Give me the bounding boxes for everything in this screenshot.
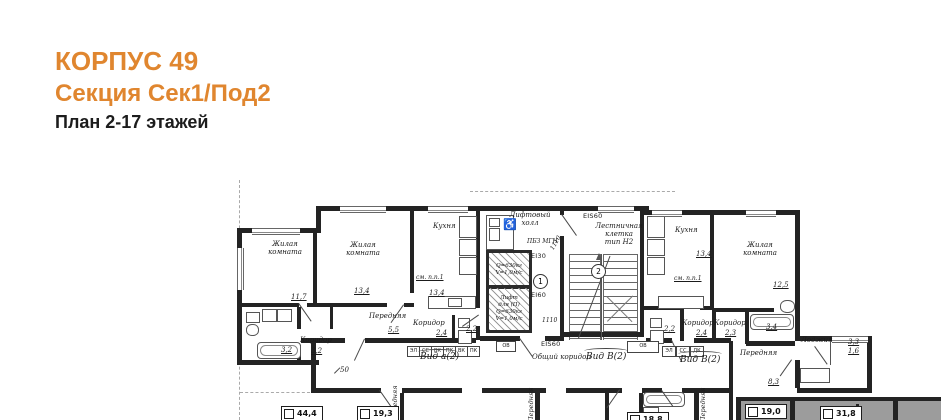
fixture <box>647 216 665 238</box>
wall <box>714 308 774 312</box>
view-mark-a: Вид а(2) <box>420 352 459 362</box>
wall <box>710 214 714 310</box>
stair-direction-arrow <box>596 250 602 260</box>
wall <box>311 388 381 393</box>
room-area-loggia-bottom: 1,6 <box>848 347 859 355</box>
i <box>748 407 758 417</box>
wall <box>736 397 941 401</box>
fixture <box>246 312 260 323</box>
stair-number-badge: 2 <box>591 264 606 279</box>
wall <box>400 393 404 420</box>
room-area-corridor-mid: 2,4 <box>436 329 447 337</box>
i <box>360 409 370 419</box>
fire-rating-eis60-top: EIS60 <box>583 213 602 220</box>
axis-line <box>240 392 310 393</box>
wall-thin <box>830 341 831 365</box>
wall <box>790 399 795 420</box>
fixture <box>277 309 292 322</box>
door-swing-line <box>519 338 532 357</box>
wall <box>797 388 872 393</box>
room-area-bath-left: 3,2 <box>281 346 292 354</box>
room-label-living1: Жилая комната <box>263 240 307 256</box>
wall <box>893 399 898 420</box>
wall <box>746 341 795 346</box>
heating-box: ОВ <box>627 341 659 353</box>
apartment-area-box: 44,4 <box>281 406 323 420</box>
lift-hall-label: Лифтовый холл <box>508 211 552 227</box>
room-note-kitchen-left: см. п.п.1 <box>416 275 444 282</box>
window <box>746 210 776 217</box>
room-area-kitchen-left: 13,4 <box>429 289 445 297</box>
view-mark-b: Вид В(2) <box>586 352 626 362</box>
apartment-area-box: 19,3 <box>357 406 399 420</box>
axis-line <box>470 191 675 192</box>
room-area-living2: 13,4 <box>354 287 370 295</box>
room-label-hall-right: Передняя <box>740 349 777 357</box>
room-label-corridor-left: Коридор <box>300 336 332 344</box>
room-area-loggia-top: 3,3 <box>848 338 859 346</box>
fixture <box>448 298 462 307</box>
fixture <box>459 257 477 275</box>
room-label-vestibule: Передняя <box>700 398 707 420</box>
door-dim: 1110 <box>542 318 557 325</box>
room-area-corridor-r2: 2,3 <box>725 329 736 337</box>
room-label-corridor-r2: Коридор <box>714 319 746 327</box>
door-swing-line <box>814 346 827 365</box>
apartment-area-box: 19,0 <box>745 404 787 419</box>
wall <box>694 338 731 343</box>
room-label-kitchen-right: Кухня <box>675 226 698 234</box>
wall <box>694 393 699 420</box>
building-title: КОРПУС 49 <box>55 46 198 77</box>
fixture <box>780 300 795 313</box>
window <box>428 206 468 213</box>
dim-50: 50 <box>340 366 349 374</box>
elevator-shaft-2: Лифт для (П) Q=630кг V=1,0м/с <box>486 285 532 333</box>
fixture <box>647 257 665 275</box>
wall <box>452 315 455 341</box>
window <box>652 210 682 217</box>
fixture <box>459 239 477 256</box>
fixture <box>489 218 500 227</box>
elevator-shaft-1: Q=630кг V=1,0м/с <box>486 250 532 289</box>
fixture <box>262 309 277 322</box>
floor-plan-page: КОРПУС 49 Секция Сек1/Под2 План 2-17 эта… <box>0 0 941 420</box>
view-mark-b: Вид В(2) <box>680 355 720 365</box>
wall <box>317 303 387 307</box>
room-area-bath-r2: 3,4 <box>766 323 777 331</box>
meter-box: ПК <box>467 346 480 357</box>
wall <box>330 307 333 329</box>
fire-rating-ei60: EI60 <box>531 292 546 299</box>
span: 19,3 <box>373 409 393 418</box>
window <box>340 206 386 213</box>
room-label-loggia: Лоджия <box>801 336 833 344</box>
wall <box>410 211 414 293</box>
window <box>598 206 634 213</box>
fixture <box>650 318 662 328</box>
elevator-1-specs: Q=630кг V=1,0м/с <box>489 253 529 286</box>
wall <box>237 360 319 365</box>
room-label-hall-left: Передняя <box>369 312 406 320</box>
i <box>823 409 833 419</box>
wall <box>535 393 540 420</box>
wall <box>307 303 317 307</box>
apartment-area-box: 31,8 <box>820 406 862 420</box>
heating-box: ОВ <box>496 341 516 352</box>
section-title: Секция Сек1/Под2 <box>55 80 271 108</box>
room-label-vestibule: Передняя <box>528 396 535 420</box>
elevator-2-specs: Лифт для (П) Q=630кг V=1,0м/с <box>489 288 529 330</box>
fire-rating-ei30: EI30 <box>531 253 546 260</box>
wall <box>729 341 733 391</box>
room-label-corridor-r1: Коридор <box>682 319 714 327</box>
span: 19,0 <box>761 407 781 416</box>
wall <box>564 332 644 337</box>
wall <box>241 303 299 307</box>
wall <box>736 397 741 420</box>
room-area-bath-mid: 2,2 <box>466 325 477 333</box>
door-swing-line <box>780 359 792 376</box>
room-label-living2: Жилая комната <box>341 241 385 257</box>
meter-box: ЭЛ <box>662 346 676 357</box>
room-note-kitchen-right: см. п.п.1 <box>674 276 702 283</box>
door-swing-line <box>354 339 365 361</box>
staircase-label: Лестничная клетка тип Н2 <box>594 222 644 246</box>
room-area-bath-r1: 2,2 <box>664 325 675 333</box>
floors-subtitle: План 2-17 этажей <box>55 112 208 133</box>
room-area-kitchen-right: 13,4 <box>696 250 712 258</box>
fixture <box>800 368 830 383</box>
wall <box>867 336 872 393</box>
wall <box>795 210 800 341</box>
wall <box>313 233 317 307</box>
wall <box>729 391 733 420</box>
room-area-living1: 11,7 <box>291 293 307 301</box>
room-area-living-right: 12,5 <box>773 281 789 289</box>
room-area-corridor-left: 3,2 <box>311 347 322 355</box>
fire-rating-eis60-door: EIS60 <box>541 341 560 348</box>
wall <box>404 303 414 307</box>
fixture <box>459 216 477 238</box>
room-area-hall-right: 8,3 <box>768 378 779 386</box>
room-label-corridor-mid: Коридор <box>413 319 445 327</box>
apartment-area-box: 18,8 <box>627 412 669 420</box>
window <box>252 228 300 235</box>
fixture <box>658 296 704 309</box>
span: 44,4 <box>297 409 317 418</box>
bathtub <box>257 342 301 359</box>
window <box>237 248 244 290</box>
lift-number-badge: 1 <box>533 274 548 289</box>
room-label-kitchen-left: Кухня <box>433 222 456 230</box>
door-swing-line <box>561 214 577 236</box>
span: 18,8 <box>643 415 663 420</box>
wall <box>297 307 301 329</box>
fixture <box>647 239 665 256</box>
wall <box>402 388 462 393</box>
wall <box>560 236 564 337</box>
i <box>284 409 294 419</box>
room-area-corridor-r1: 2,4 <box>696 329 707 337</box>
span: 31,8 <box>836 409 856 418</box>
fixture <box>489 228 500 241</box>
i <box>630 415 640 420</box>
room-label-living-right: Жилая комната <box>737 241 783 257</box>
room-area-hall-left: 5,5 <box>388 326 399 334</box>
common-corridor-label: Общий коридор <box>532 353 591 361</box>
wall <box>566 388 622 393</box>
fixture <box>246 324 259 336</box>
